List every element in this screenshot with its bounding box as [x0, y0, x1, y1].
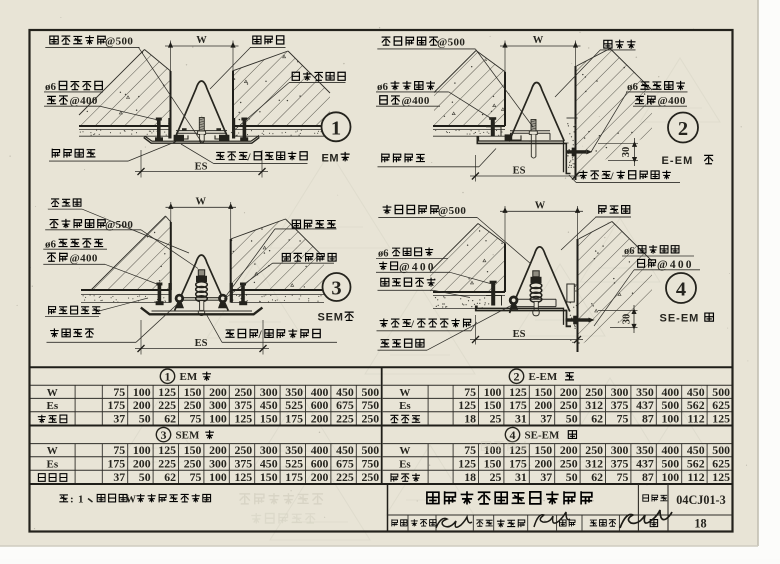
- svg-text:100: 100: [661, 470, 679, 484]
- svg-text:37: 37: [540, 470, 552, 484]
- svg-text:@500: @500: [105, 36, 133, 48]
- svg-text:125: 125: [712, 411, 730, 425]
- svg-text:4: 4: [676, 279, 686, 301]
- svg-text:@400: @400: [402, 95, 430, 107]
- svg-text:625: 625: [712, 398, 730, 412]
- svg-text:W: W: [47, 445, 58, 457]
- svg-text:4: 4: [510, 428, 516, 442]
- svg-text:100: 100: [484, 385, 502, 399]
- svg-text:ø6: ø6: [378, 248, 389, 259]
- svg-text:2: 2: [514, 369, 520, 383]
- svg-text:ES: ES: [513, 329, 526, 340]
- svg-text:200: 200: [209, 385, 227, 399]
- svg-text:Es: Es: [399, 458, 411, 470]
- svg-text:112: 112: [688, 411, 705, 425]
- svg-text:375: 375: [611, 456, 629, 470]
- svg-text:400: 400: [311, 385, 329, 399]
- svg-text:150: 150: [534, 443, 552, 457]
- svg-text:525: 525: [285, 456, 303, 470]
- svg-text:125: 125: [509, 385, 527, 399]
- svg-text:31: 31: [515, 470, 527, 484]
- svg-text:200: 200: [133, 398, 151, 412]
- svg-text:175: 175: [107, 456, 125, 470]
- svg-text:W: W: [399, 387, 410, 399]
- svg-text:312: 312: [585, 398, 603, 412]
- svg-text:30: 30: [622, 314, 633, 325]
- svg-text:3: 3: [161, 428, 167, 442]
- svg-text:125: 125: [158, 385, 176, 399]
- svg-text:ø6: ø6: [45, 239, 57, 251]
- svg-text:.: .: [204, 494, 207, 506]
- svg-text:ø6: ø6: [624, 246, 635, 257]
- svg-text:62: 62: [164, 411, 176, 425]
- svg-text:150: 150: [260, 470, 278, 484]
- svg-text:ø6: ø6: [377, 81, 389, 93]
- svg-text:W: W: [195, 196, 206, 207]
- svg-text:75: 75: [190, 411, 202, 425]
- svg-text:675: 675: [336, 456, 354, 470]
- svg-text:100: 100: [209, 411, 227, 425]
- svg-text:50: 50: [139, 411, 151, 425]
- svg-text:E-EM: E-EM: [662, 155, 694, 167]
- svg-text:312: 312: [585, 456, 603, 470]
- svg-text:150: 150: [184, 443, 202, 457]
- svg-text:175: 175: [107, 398, 125, 412]
- svg-text:112: 112: [688, 470, 705, 484]
- svg-text:300: 300: [209, 398, 227, 412]
- svg-text:18: 18: [694, 516, 706, 530]
- svg-text:150: 150: [534, 385, 552, 399]
- svg-text:37: 37: [113, 470, 125, 484]
- svg-text:450: 450: [336, 385, 354, 399]
- svg-text:EM: EM: [322, 152, 340, 164]
- svg-text:250: 250: [585, 385, 603, 399]
- svg-text:600: 600: [311, 398, 329, 412]
- svg-text:125: 125: [458, 456, 476, 470]
- svg-text:225: 225: [158, 398, 176, 412]
- svg-text:500: 500: [712, 385, 730, 399]
- svg-text:25: 25: [490, 470, 502, 484]
- svg-text:400: 400: [661, 385, 679, 399]
- svg-text:ES: ES: [195, 162, 208, 173]
- svg-text:250: 250: [585, 443, 603, 457]
- svg-text:Es: Es: [399, 400, 411, 412]
- svg-text:200: 200: [209, 443, 227, 457]
- svg-text:75: 75: [464, 385, 476, 399]
- svg-text:175: 175: [285, 411, 303, 425]
- svg-text:62: 62: [591, 411, 603, 425]
- svg-text:125: 125: [458, 398, 476, 412]
- svg-text:@500: @500: [105, 219, 133, 231]
- svg-text:87: 87: [642, 470, 654, 484]
- svg-text:200: 200: [311, 411, 329, 425]
- svg-text:87: 87: [642, 411, 654, 425]
- svg-text:E-EM: E-EM: [529, 371, 558, 383]
- svg-text:125: 125: [234, 470, 252, 484]
- svg-text:150: 150: [184, 385, 202, 399]
- svg-text:250: 250: [234, 443, 252, 457]
- svg-text:250: 250: [184, 456, 202, 470]
- svg-text:75: 75: [617, 411, 629, 425]
- svg-text:150: 150: [484, 456, 502, 470]
- svg-text:62: 62: [164, 470, 176, 484]
- svg-text:750: 750: [361, 398, 379, 412]
- svg-text:500: 500: [661, 398, 679, 412]
- svg-text:150: 150: [260, 411, 278, 425]
- svg-text:25: 25: [490, 411, 502, 425]
- svg-text:@500: @500: [438, 205, 466, 217]
- svg-text:562: 562: [687, 398, 705, 412]
- svg-text:225: 225: [158, 456, 176, 470]
- svg-text:300: 300: [260, 443, 278, 457]
- svg-text:Es: Es: [46, 400, 58, 412]
- svg-text:500: 500: [712, 443, 730, 457]
- svg-text:@400: @400: [657, 259, 694, 271]
- svg-text:50: 50: [566, 411, 578, 425]
- svg-text:175: 175: [285, 470, 303, 484]
- svg-text:450: 450: [260, 456, 278, 470]
- svg-text::: :: [70, 494, 74, 506]
- svg-text:525: 525: [285, 398, 303, 412]
- svg-text:300: 300: [611, 443, 629, 457]
- svg-text:450: 450: [260, 398, 278, 412]
- svg-text:500: 500: [361, 385, 379, 399]
- svg-text:300: 300: [611, 385, 629, 399]
- svg-text:1: 1: [331, 117, 341, 139]
- svg-text:200: 200: [534, 398, 552, 412]
- svg-text:500: 500: [361, 443, 379, 457]
- svg-text:W: W: [535, 200, 546, 211]
- svg-text:375: 375: [234, 456, 252, 470]
- svg-text:437: 437: [636, 398, 654, 412]
- svg-text:100: 100: [661, 411, 679, 425]
- svg-text:Es: Es: [46, 458, 58, 470]
- svg-text:250: 250: [560, 456, 578, 470]
- svg-text:18: 18: [464, 470, 476, 484]
- svg-text:125: 125: [712, 470, 730, 484]
- svg-text:75: 75: [190, 470, 202, 484]
- svg-text:ES: ES: [513, 166, 526, 177]
- svg-text:04CJ01-3: 04CJ01-3: [676, 493, 725, 507]
- svg-text:350: 350: [636, 443, 654, 457]
- svg-text:350: 350: [636, 385, 654, 399]
- svg-text:31: 31: [515, 411, 527, 425]
- svg-text:W: W: [126, 495, 137, 506]
- svg-text:37: 37: [540, 411, 552, 425]
- svg-text:200: 200: [560, 443, 578, 457]
- svg-text:@500: @500: [437, 37, 465, 49]
- svg-text:EM: EM: [180, 371, 198, 383]
- svg-text:18: 18: [464, 411, 476, 425]
- svg-text:SE-EM: SE-EM: [525, 430, 560, 442]
- svg-text:100: 100: [133, 443, 151, 457]
- svg-text:50: 50: [139, 470, 151, 484]
- svg-text:W: W: [47, 387, 58, 399]
- svg-text:175: 175: [509, 456, 527, 470]
- svg-text:750: 750: [361, 456, 379, 470]
- svg-text:SE-EM: SE-EM: [660, 313, 700, 325]
- svg-text:450: 450: [687, 385, 705, 399]
- svg-text:250: 250: [361, 470, 379, 484]
- svg-text:100: 100: [133, 385, 151, 399]
- svg-text:75: 75: [617, 470, 629, 484]
- svg-text:375: 375: [234, 398, 252, 412]
- svg-text:200: 200: [534, 456, 552, 470]
- svg-text:125: 125: [158, 443, 176, 457]
- svg-text:100: 100: [209, 470, 227, 484]
- svg-text:350: 350: [285, 443, 303, 457]
- svg-text:ø6: ø6: [45, 81, 57, 93]
- svg-text:625: 625: [712, 456, 730, 470]
- svg-text:@400: @400: [70, 95, 98, 107]
- svg-text:250: 250: [234, 385, 252, 399]
- svg-text:SEM: SEM: [176, 430, 200, 442]
- svg-text:175: 175: [509, 398, 527, 412]
- svg-text:75: 75: [464, 443, 476, 457]
- svg-text:225: 225: [336, 411, 354, 425]
- svg-text:ES: ES: [195, 338, 208, 349]
- svg-text:1: 1: [165, 369, 171, 383]
- svg-text:2: 2: [678, 118, 688, 140]
- svg-text:@400: @400: [399, 261, 436, 273]
- svg-text:@400: @400: [658, 95, 686, 107]
- svg-text:62: 62: [591, 470, 603, 484]
- svg-text:75: 75: [113, 385, 125, 399]
- svg-text:150: 150: [484, 398, 502, 412]
- svg-text:1: 1: [78, 494, 84, 506]
- svg-text:562: 562: [687, 456, 705, 470]
- svg-text:50: 50: [566, 470, 578, 484]
- svg-text:450: 450: [687, 443, 705, 457]
- svg-text:300: 300: [209, 456, 227, 470]
- svg-text:300: 300: [260, 385, 278, 399]
- svg-text:250: 250: [184, 398, 202, 412]
- svg-text:37: 37: [113, 411, 125, 425]
- svg-text:225: 225: [336, 470, 354, 484]
- svg-text:450: 450: [336, 443, 354, 457]
- svg-text:W: W: [399, 445, 410, 457]
- svg-text:200: 200: [560, 385, 578, 399]
- svg-text:200: 200: [133, 456, 151, 470]
- svg-text:350: 350: [285, 385, 303, 399]
- svg-text:400: 400: [661, 443, 679, 457]
- svg-text:437: 437: [636, 456, 654, 470]
- svg-text:375: 375: [611, 398, 629, 412]
- svg-text:3: 3: [331, 278, 341, 300]
- svg-text:200: 200: [311, 470, 329, 484]
- svg-text:30: 30: [621, 147, 632, 158]
- svg-text:125: 125: [234, 411, 252, 425]
- svg-text:250: 250: [361, 411, 379, 425]
- svg-text:675: 675: [336, 398, 354, 412]
- svg-text:250: 250: [560, 398, 578, 412]
- svg-text:ø6: ø6: [627, 81, 639, 93]
- svg-text:SEM: SEM: [318, 312, 344, 324]
- svg-text:600: 600: [311, 456, 329, 470]
- svg-text:W: W: [196, 35, 207, 46]
- svg-text:75: 75: [113, 443, 125, 457]
- svg-text:500: 500: [661, 456, 679, 470]
- svg-text:@400: @400: [70, 252, 98, 264]
- svg-text:400: 400: [311, 443, 329, 457]
- svg-text:W: W: [533, 35, 544, 46]
